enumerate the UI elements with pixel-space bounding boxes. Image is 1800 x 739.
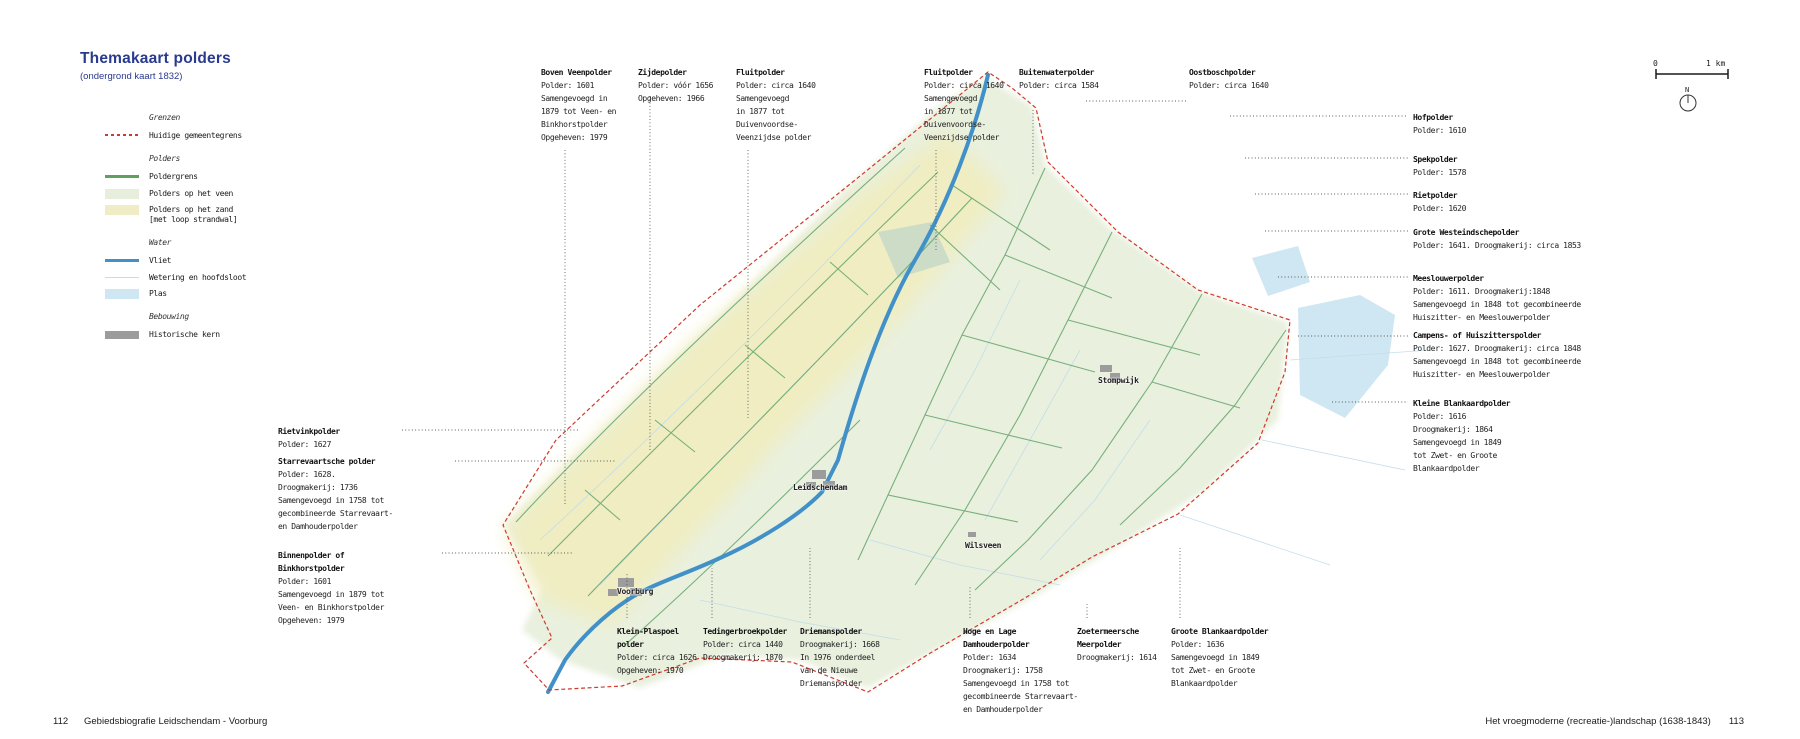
- map-legend: Grenzen Huidige gemeentegrens Polders Po…: [105, 100, 375, 347]
- text-line: Hofpolder: [1413, 111, 1466, 124]
- text-line: Poldergrens: [149, 172, 198, 182]
- text-line: Polder: 1611. Droogmakerij:1848: [1413, 285, 1581, 298]
- kern-fill-swatch: [105, 331, 139, 339]
- annotation-spekpolder: Spekpolder Polder: 1578: [1413, 153, 1466, 179]
- place-label-voorburg: Voorburg: [617, 587, 653, 596]
- scale-zero-label: 0: [1653, 59, 1658, 68]
- text-line: Plas: [149, 289, 167, 299]
- polder-title: Fluitpolder: [736, 66, 816, 79]
- text-line: Veen- en Binkhorstpolder: [278, 601, 384, 614]
- text-line: Samengevoegd in: [541, 92, 616, 105]
- text-line: Binnenpolder of: [278, 549, 384, 562]
- text-line: Droogmakerij: 1668: [800, 638, 880, 651]
- text-line: Tedingerbroekpolder: [703, 625, 787, 638]
- place-label-leidschendam: Leidschendam: [793, 483, 847, 492]
- annotation-rietpolder: Rietpolder Polder: 1620: [1413, 189, 1466, 215]
- text-line: Polder: circa 1584: [1019, 79, 1099, 92]
- text-line: Grote Westeindschepolder: [1413, 226, 1581, 239]
- text-line: en Damhouderpolder: [278, 520, 393, 533]
- text-line: Huiszitter- en Meeslouwerpolder: [1413, 311, 1581, 324]
- polder-details: Polder: 1628.Droogmakerij: 1736Samengevo…: [278, 468, 393, 533]
- legend-item-veen: Polders op het veen: [105, 189, 375, 199]
- text-line: Blankaardpolder: [1171, 677, 1268, 690]
- polder-title: Groote Blankaardpolder: [1171, 625, 1268, 638]
- text-line: Opgeheven: 1979: [541, 131, 616, 144]
- text-line: Samengevoegd in 1879 tot: [278, 588, 384, 601]
- text-line: Polder: circa 1440: [703, 638, 787, 651]
- text-line: Polder: 1628.: [278, 468, 393, 481]
- text-line: Polder: 1627. Droogmakerij: circa 1848: [1413, 342, 1581, 355]
- place-label-stompwijk: Stompwijk: [1098, 376, 1139, 385]
- text-line: Droogmakerij: 1736: [278, 481, 393, 494]
- themakaart-polders-page: Themakaart polders (ondergrond kaart 183…: [0, 0, 1800, 739]
- text-line: Driemanspolder: [800, 625, 880, 638]
- text-line: Fluitpolder: [736, 66, 816, 79]
- legend-heading-polders: Polders: [149, 154, 375, 164]
- text-line: Meerpolder: [1077, 638, 1157, 651]
- text-line: Polder: 1641. Droogmakerij: circa 1853: [1413, 239, 1581, 252]
- text-line: Huidige gemeentegrens: [149, 131, 242, 141]
- polder-title: Spekpolder: [1413, 153, 1466, 166]
- annotation-binnenpolder-of-binkhorstpolder: Binnenpolder ofBinkhorstpolder Polder: 1…: [278, 549, 384, 627]
- polder-details: Polder: circa 1584: [1019, 79, 1099, 92]
- text-line: gecombineerde Starrevaart-: [963, 690, 1078, 703]
- text-line: Binkhorstpolder: [541, 118, 616, 131]
- polder-details: Polder: 1616Droogmakerij: 1864Samengevoe…: [1413, 410, 1510, 475]
- polder-details: Polder: circa 1626Opgeheven: 1970: [617, 651, 697, 677]
- place-label-wilsveen: Wilsveen: [965, 541, 1001, 550]
- text-line: Rietvinkpolder: [278, 425, 340, 438]
- text-line: tot Zwet- en Groote: [1171, 664, 1268, 677]
- polder-title: Kleine Blankaardpolder: [1413, 397, 1510, 410]
- text-line: Polder: circa 1640: [736, 79, 816, 92]
- annotation-grote-westeindschepolder: Grote Westeindschepolder Polder: 1641. D…: [1413, 226, 1581, 252]
- text-line: Veenzijdse polder: [924, 131, 1004, 144]
- text-line: Polder: 1610: [1413, 124, 1466, 137]
- text-line: Polder: circa 1626: [617, 651, 697, 664]
- text-line: Zoetermeersche: [1077, 625, 1157, 638]
- legend-item-wetering: Wetering en hoofdsloot: [105, 273, 375, 283]
- polder-title: Buitenwaterpolder: [1019, 66, 1099, 79]
- text-line: 1879 tot Veen- en: [541, 105, 616, 118]
- text-line: Droogmakerij: 1758: [963, 664, 1078, 677]
- polder-details: Polder: circa 1440Droogmakerij: 1870: [703, 638, 787, 664]
- text-line: Polder: 1620: [1413, 202, 1466, 215]
- text-line: Polder: 1636: [1171, 638, 1268, 651]
- text-line: Huiszitter- en Meeslouwerpolder: [1413, 368, 1581, 381]
- red-dashed-line-swatch: [105, 134, 139, 136]
- text-line: Samengevoegd in 1758 tot: [278, 494, 393, 507]
- annotation-zijdepolder: Zijdepolder Polder: vóór 1656Opgeheven: …: [638, 66, 713, 105]
- legend-item-poldergrens: Poldergrens: [105, 172, 375, 182]
- scale-bar-line: [1656, 69, 1728, 79]
- text-line: Polder: 1601: [541, 79, 616, 92]
- polder-details: Polder: 1627. Droogmakerij: circa 1848Sa…: [1413, 342, 1581, 381]
- annotation-tedingerbroekpolder: Tedingerbroekpolder Polder: circa 1440Dr…: [703, 625, 787, 664]
- polder-title: Fluitpolder: [924, 66, 1004, 79]
- polder-details: Polder: circa 1640Samengevoegdin 1877 to…: [924, 79, 1004, 144]
- text-line: Binkhorstpolder: [278, 562, 384, 575]
- polder-title: Driemanspolder: [800, 625, 880, 638]
- green-line-swatch: [105, 175, 139, 178]
- footer-book-title: Gebiedsbiografie Leidschendam - Voorburg: [84, 716, 267, 727]
- polder-details: Polder: 1601Samengevoegd in 1879 totVeen…: [278, 575, 384, 627]
- polder-title: Rietpolder: [1413, 189, 1466, 202]
- annotation-zoetermeersche-meerpolder: ZoetermeerscheMeerpolder Droogmakerij: 1…: [1077, 625, 1157, 664]
- text-line: Hoge en Lage: [963, 625, 1078, 638]
- legend-heading-grenzen: Grenzen: [149, 113, 375, 123]
- text-line: en Damhouderpolder: [963, 703, 1078, 716]
- legend-item-plas: Plas: [105, 289, 375, 299]
- annotation-rietvinkpolder: Rietvinkpolder Polder: 1627: [278, 425, 340, 451]
- text-line: Buitenwaterpolder: [1019, 66, 1099, 79]
- text-line: Opgeheven: 1966: [638, 92, 713, 105]
- legend-heading-bebouwing: Bebouwing: [149, 312, 375, 322]
- polder-details: Polder: 1636Samengevoegd in 1849tot Zwet…: [1171, 638, 1268, 690]
- polder-details: Polder: circa 1640: [1189, 79, 1269, 92]
- polder-title: Hofpolder: [1413, 111, 1466, 124]
- text-line: Groote Blankaardpolder: [1171, 625, 1268, 638]
- scale-bar: 0 1 km N: [1648, 50, 1748, 120]
- annotation-kleine-blankaardpolder: Kleine Blankaardpolder Polder: 1616Droog…: [1413, 397, 1510, 475]
- text-line: tot Zwet- en Groote: [1413, 449, 1510, 462]
- text-line: Samengevoegd in 1848 tot gecombineerde: [1413, 298, 1581, 311]
- text-line: Vliet: [149, 256, 171, 266]
- polder-details: Polder: 1641. Droogmakerij: circa 1853: [1413, 239, 1581, 252]
- historic-core-wilsveen: [968, 532, 976, 537]
- text-line: Historische kern: [149, 330, 220, 340]
- text-line: Kleine Blankaardpolder: [1413, 397, 1510, 410]
- text-line: Starrevaartsche polder: [278, 455, 393, 468]
- text-line: [met loop strandwal]: [149, 215, 237, 225]
- annotation-fluitpolder-west: Fluitpolder Polder: circa 1640Samengevoe…: [736, 66, 816, 144]
- text-line: Meeslouwerpolder: [1413, 272, 1581, 285]
- annotation-groote-blankaardpolder: Groote Blankaardpolder Polder: 1636Samen…: [1171, 625, 1268, 690]
- polder-title: Starrevaartsche polder: [278, 455, 393, 468]
- text-line: Polders op het veen: [149, 189, 233, 199]
- text-line: Driemanspolder: [800, 677, 880, 690]
- polder-details: Polder: 1634Droogmakerij: 1758Samengevoe…: [963, 651, 1078, 716]
- legend-item-vliet: Vliet: [105, 256, 375, 266]
- text-line: Samengevoegd in 1758 tot: [963, 677, 1078, 690]
- plas-fill-swatch: [105, 289, 139, 299]
- polder-title: Binnenpolder ofBinkhorstpolder: [278, 549, 384, 575]
- text-line: Rietpolder: [1413, 189, 1466, 202]
- polder-details: Polder: 1620: [1413, 202, 1466, 215]
- veen-fill-swatch: [105, 189, 139, 199]
- footer-chapter-title: Het vroegmoderne (recreatie-)landschap (…: [1485, 716, 1710, 727]
- text-line: Droogmakerij: 1870: [703, 651, 787, 664]
- polder-details: Polder: 1578: [1413, 166, 1466, 179]
- annotation-klein-plaspoel-polder: Klein-Plaspoelpolder Polder: circa 1626O…: [617, 625, 697, 677]
- legend-item-zand: Polders op het zand[met loop strandwal]: [105, 205, 375, 225]
- text-line: Spekpolder: [1413, 153, 1466, 166]
- polder-title: Boven Veenpolder: [541, 66, 616, 79]
- text-line: Wetering en hoofdsloot: [149, 273, 246, 283]
- text-line: Polder: vóór 1656: [638, 79, 713, 92]
- polder-details: Polder: 1610: [1413, 124, 1466, 137]
- polder-details: Droogmakerij: 1668In 1976 onderdeelvan d…: [800, 638, 880, 690]
- polder-details: Droogmakerij: 1614: [1077, 651, 1157, 664]
- polder-details: Polder: 1601Samengevoegd in1879 tot Veen…: [541, 79, 616, 144]
- polder-details: Polder: vóór 1656Opgeheven: 1966: [638, 79, 713, 105]
- legend-item-gemeentegrens: Huidige gemeentegrens: [105, 131, 375, 141]
- polder-title: Grote Westeindschepolder: [1413, 226, 1581, 239]
- polder-title: Meeslouwerpolder: [1413, 272, 1581, 285]
- text-line: Oostboschpolder: [1189, 66, 1269, 79]
- annotation-driemanspolder: Driemanspolder Droogmakerij: 1668In 1976…: [800, 625, 880, 690]
- text-line: Duivenvoordse-: [736, 118, 816, 131]
- text-line: Boven Veenpolder: [541, 66, 616, 79]
- polder-title: Zijdepolder: [638, 66, 713, 79]
- legend-heading-water: Water: [149, 238, 375, 248]
- text-line: Droogmakerij: 1864: [1413, 423, 1510, 436]
- polder-details: Polder: 1611. Droogmakerij:1848Samengevo…: [1413, 285, 1581, 324]
- text-line: Polders op het zand: [149, 205, 237, 215]
- text-line: Samengevoegd in 1849: [1413, 436, 1510, 449]
- text-line: van de Nieuwe: [800, 664, 880, 677]
- text-line: Klein-Plaspoel: [617, 625, 697, 638]
- polder-title: Tedingerbroekpolder: [703, 625, 787, 638]
- annotation-meeslouwerpolder: Meeslouwerpolder Polder: 1611. Droogmake…: [1413, 272, 1581, 324]
- text-line: Polder: 1634: [963, 651, 1078, 664]
- scale-bar-graphic: 0 1 km N: [1648, 50, 1748, 116]
- text-line: Polder: 1601: [278, 575, 384, 588]
- text-line: in 1877 tot: [924, 105, 1004, 118]
- annotation-oostboschpolder: Oostboschpolder Polder: circa 1640: [1189, 66, 1269, 92]
- text-line: Polder: 1616: [1413, 410, 1510, 423]
- page-number-right: 113: [1729, 716, 1744, 727]
- text-line: Samengevoegd in 1849: [1171, 651, 1268, 664]
- text-line: Zijdepolder: [638, 66, 713, 79]
- text-line: polder: [617, 638, 697, 651]
- text-line: in 1877 tot: [736, 105, 816, 118]
- text-line: Samengevoegd: [736, 92, 816, 105]
- text-line: Polder: 1578: [1413, 166, 1466, 179]
- text-line: Polder: circa 1640: [924, 79, 1004, 92]
- text-line: Veenzijdse polder: [736, 131, 816, 144]
- polder-title: ZoetermeerscheMeerpolder: [1077, 625, 1157, 651]
- text-line: Samengevoegd in 1848 tot gecombineerde: [1413, 355, 1581, 368]
- page-number-left: 112: [53, 716, 68, 727]
- text-line: Polder: circa 1640: [1189, 79, 1269, 92]
- footer-right: Het vroegmoderne (recreatie-)landschap (…: [1485, 716, 1744, 727]
- polder-title: Hoge en LageDamhouderpolder: [963, 625, 1078, 651]
- annotation-campens-of-huiszitterspolder: Campens- of Huiszitterspolder Polder: 16…: [1413, 329, 1581, 381]
- compass-north-label: N: [1685, 86, 1689, 94]
- annotation-boven-veenpolder: Boven Veenpolder Polder: 1601Samengevoeg…: [541, 66, 616, 144]
- text-line: Opgeheven: 1970: [617, 664, 697, 677]
- text-line: Fluitpolder: [924, 66, 1004, 79]
- vliet-line-swatch: [105, 259, 139, 263]
- annotation-hofpolder: Hofpolder Polder: 1610: [1413, 111, 1466, 137]
- text-line: Polder: 1627: [278, 438, 340, 451]
- text-line: Droogmakerij: 1614: [1077, 651, 1157, 664]
- text-line: Duivenvoordse-: [924, 118, 1004, 131]
- annotation-buitenwaterpolder: Buitenwaterpolder Polder: circa 1584: [1019, 66, 1099, 92]
- polder-details: Polder: 1627: [278, 438, 340, 451]
- compass-icon: [1680, 95, 1696, 111]
- text-line: Samengevoegd: [924, 92, 1004, 105]
- text-line: Blankaardpolder: [1413, 462, 1510, 475]
- polder-title: Rietvinkpolder: [278, 425, 340, 438]
- zand-fill-swatch: [105, 205, 139, 215]
- page-title: Themakaart polders: [80, 50, 231, 68]
- wetering-line-swatch: [105, 277, 139, 279]
- scale-distance-label: 1 km: [1706, 59, 1725, 68]
- polder-title: Oostboschpolder: [1189, 66, 1269, 79]
- text-line: gecombineerde Starrevaart-: [278, 507, 393, 520]
- polder-title: Klein-Plaspoelpolder: [617, 625, 697, 651]
- polder-details: Polder: circa 1640Samengevoegdin 1877 to…: [736, 79, 816, 144]
- polder-title: Campens- of Huiszitterspolder: [1413, 329, 1581, 342]
- legend-item-historische-kern: Historische kern: [105, 330, 375, 340]
- text-line: Opgeheven: 1979: [278, 614, 384, 627]
- text-line: Damhouderpolder: [963, 638, 1078, 651]
- annotation-fluitpolder-east: Fluitpolder Polder: circa 1640Samengevoe…: [924, 66, 1004, 144]
- page-subtitle: (ondergrond kaart 1832): [80, 71, 182, 82]
- annotation-starrevaartsche-polder: Starrevaartsche polder Polder: 1628.Droo…: [278, 455, 393, 533]
- text-line: In 1976 onderdeel: [800, 651, 880, 664]
- annotation-hoge-en-lage-damhouderpolder: Hoge en LageDamhouderpolder Polder: 1634…: [963, 625, 1078, 716]
- text-line: Campens- of Huiszitterspolder: [1413, 329, 1581, 342]
